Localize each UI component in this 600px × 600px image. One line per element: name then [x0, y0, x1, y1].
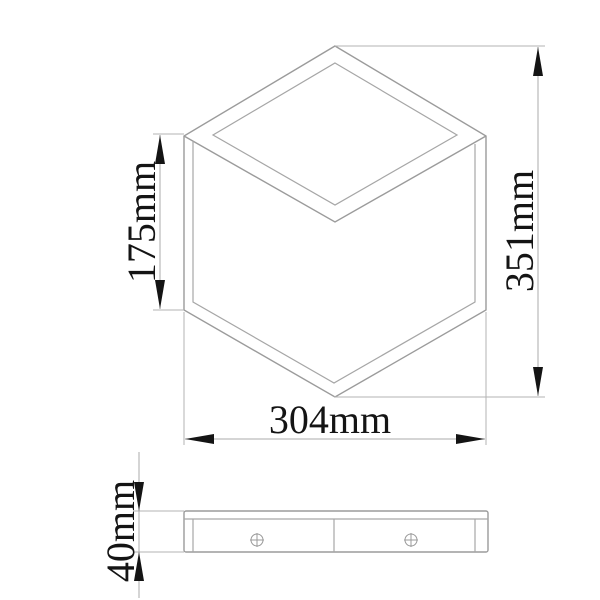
cube-top-face-edges — [184, 136, 486, 222]
dimension-depth: 40mm — [98, 452, 184, 598]
dimension-front-height: 175mm — [119, 134, 184, 310]
dimension-label-depth: 40mm — [98, 480, 143, 582]
dimension-total-width: 304mm — [184, 312, 486, 445]
arrowhead-right-icon — [456, 434, 485, 444]
side-profile-view — [184, 511, 488, 552]
top-face-inner-frame — [213, 63, 457, 205]
arrowhead-down-icon — [155, 280, 165, 309]
arrowhead-up-icon — [533, 47, 543, 76]
dimension-label-front-height: 175mm — [119, 161, 164, 283]
screw-icon — [250, 533, 264, 547]
dimension-label-total-width: 304mm — [269, 397, 391, 442]
technical-drawing-canvas: 175mm 351mm 304mm 40mm — [0, 0, 600, 600]
arrowhead-up-icon — [155, 135, 165, 164]
drawing-page: 175mm 351mm 304mm 40mm — [0, 0, 600, 600]
dimension-label-total-height: 351mm — [497, 170, 542, 292]
arrowhead-left-icon — [185, 434, 214, 444]
dimension-total-height: 351mm — [334, 46, 545, 397]
arrowhead-down-icon — [533, 367, 543, 396]
front-isometric-view — [184, 46, 486, 397]
side-profile-outer-body — [184, 511, 488, 552]
front-face-inner-frame — [193, 141, 475, 383]
screw-icon — [404, 533, 418, 547]
